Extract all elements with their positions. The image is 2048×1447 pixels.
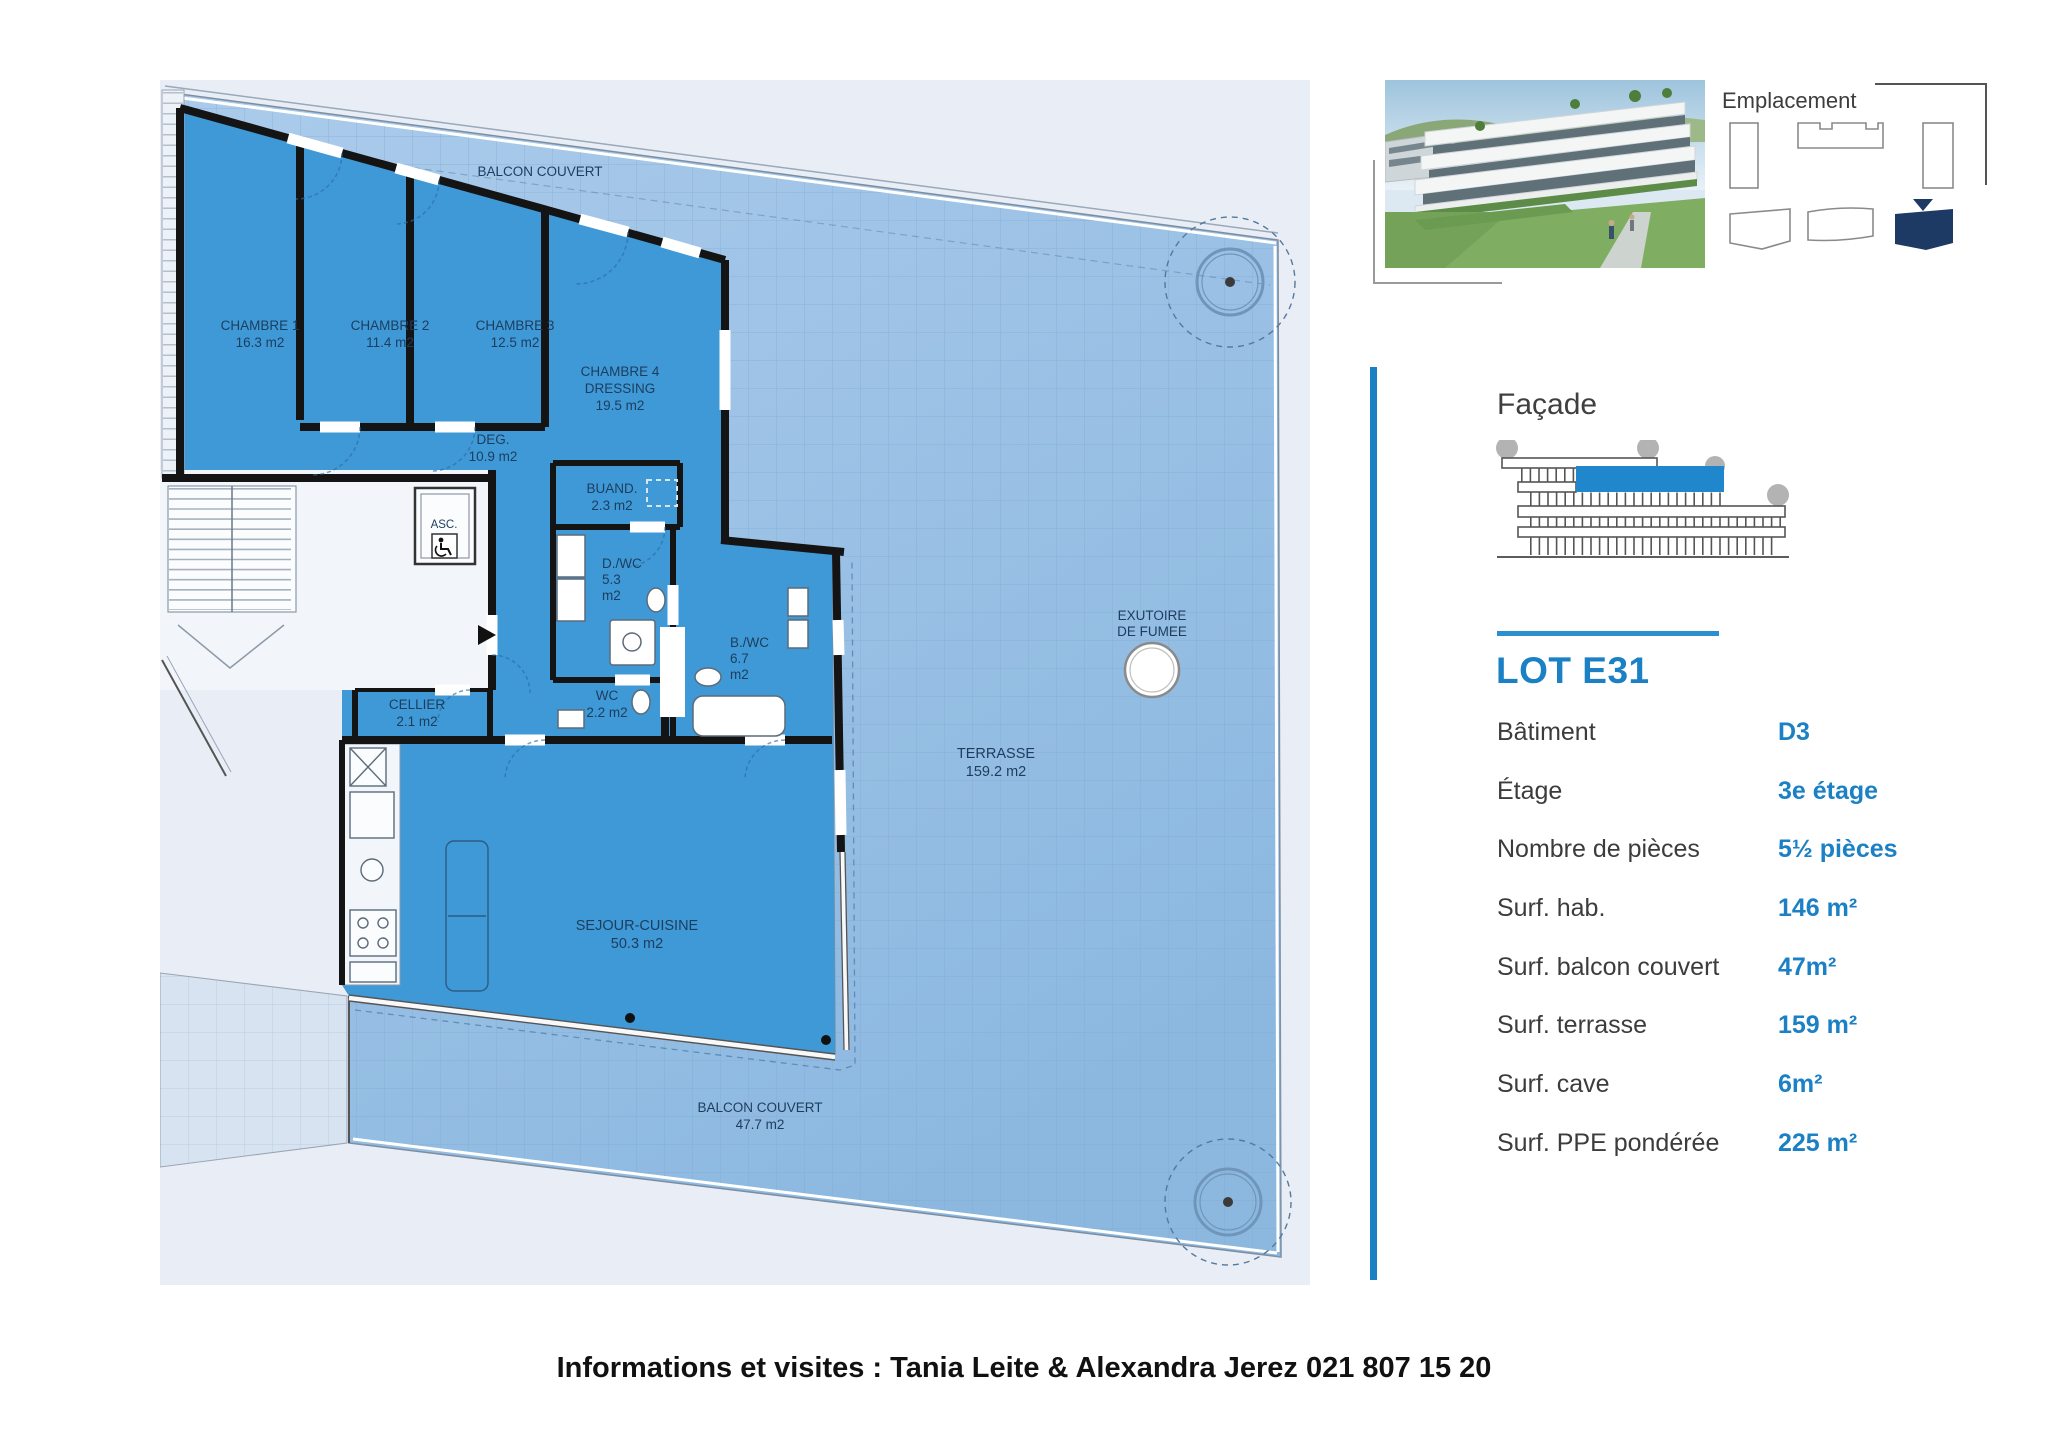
room-label-asc: ASC. <box>431 519 458 531</box>
room-label: SEJOUR-CUISINE <box>576 918 699 934</box>
lot-row-label: Étage <box>1497 777 1562 806</box>
room-label: WC <box>596 688 619 703</box>
lot-row-label: Nombre de pièces <box>1497 835 1700 864</box>
lot-table: Bâtiment D3 Étage 3e étage Nombre de piè… <box>1497 703 2017 1173</box>
room-label: CHAMBRE 1 <box>221 318 300 333</box>
lot-row: Surf. cave 6m² <box>1497 1055 2017 1114</box>
lot-row: Surf. terrasse 159 m² <box>1497 996 2017 1055</box>
room-label: DE FUMEE <box>1117 624 1187 639</box>
lot-row-label: Surf. terrasse <box>1497 1011 1647 1040</box>
bathtub <box>693 696 785 736</box>
room-area: 19.5 m2 <box>596 398 645 413</box>
contact-footer: Informations et visites : Tania Leite & … <box>0 1352 2048 1385</box>
wheelchair-icon <box>432 534 457 558</box>
lot-row: Surf. balcon couvert 47m² <box>1497 938 2017 997</box>
lot-row-value: D3 <box>1778 718 1810 747</box>
room-area: 12.5 m2 <box>491 335 540 350</box>
room-area: 2.2 m2 <box>586 705 627 720</box>
room-area: m2 <box>730 667 749 682</box>
room-label: TERRASSE <box>957 746 1035 762</box>
room-label: CHAMBRE 2 <box>351 318 430 333</box>
site-plan <box>1720 118 1990 268</box>
lot-row-value: 5½ pièces <box>1778 835 1898 864</box>
label-balcon-top: BALCON COUVERT <box>477 164 602 179</box>
room-label: CHAMBRE 4 <box>581 364 660 379</box>
room-area: m2 <box>602 588 621 603</box>
lot-divider <box>1497 631 1719 636</box>
lot-row-value: 47m² <box>1778 953 1836 982</box>
room-area: 5.3 <box>602 572 621 587</box>
room-label: BALCON COUVERT <box>697 1100 822 1115</box>
room-area: 2.3 m2 <box>591 498 632 513</box>
lot-row-label: Surf. hab. <box>1497 894 1605 923</box>
lot-row: Bâtiment D3 <box>1497 703 2017 762</box>
lot-row: Surf. PPE pondérée 225 m² <box>1497 1114 2017 1173</box>
triangle-marker-icon <box>1913 199 1933 211</box>
room-label: B./WC <box>730 635 769 650</box>
lot-row-label: Surf. cave <box>1497 1070 1610 1099</box>
toilet <box>632 690 650 714</box>
photo-corner-bracket <box>1373 160 1502 284</box>
floor-plan-svg: ASC. <box>160 80 1310 1285</box>
site-building-highlighted <box>1895 209 1953 250</box>
emplacement-section: Emplacement <box>1720 88 2010 278</box>
lot-row: Nombre de pièces 5½ pièces <box>1497 820 2017 879</box>
room-area: 10.9 m2 <box>469 449 518 464</box>
room-area: 6.7 <box>730 651 749 666</box>
site-building-outline <box>1730 209 1790 249</box>
room-label: EXUTOIRE <box>1118 608 1187 623</box>
lot-row-label: Surf. balcon couvert <box>1497 953 1719 982</box>
room-label: BUAND. <box>586 481 637 496</box>
toilet <box>647 588 665 612</box>
washbasin <box>695 668 721 686</box>
room-label: CELLIER <box>389 697 446 712</box>
room-area: 159.2 m2 <box>966 764 1026 780</box>
room-label: DEG. <box>476 432 509 447</box>
door-pillar <box>660 627 685 717</box>
room-area: 11.4 m2 <box>366 335 414 350</box>
lot-row-value: 6m² <box>1778 1070 1822 1099</box>
lot-row: Surf. hab. 146 m² <box>1497 879 2017 938</box>
site-building-outline <box>1798 123 1883 148</box>
room-area: 50.3 m2 <box>611 936 663 952</box>
lot-title: LOT E31 <box>1496 650 1650 692</box>
lot-row-value: 146 m² <box>1778 894 1857 923</box>
site-building-outline <box>1808 208 1873 241</box>
room-area: 16.3 m2 <box>236 335 285 350</box>
lot-row-label: Surf. PPE pondérée <box>1497 1129 1719 1158</box>
facade-diagram <box>1495 440 1795 568</box>
room-label: DRESSING <box>585 381 656 396</box>
lot-row-value: 225 m² <box>1778 1129 1857 1158</box>
site-building-outline <box>1730 123 1758 188</box>
lot-row-value: 3e étage <box>1778 777 1878 806</box>
shower <box>610 620 655 665</box>
facade-title: Façade <box>1497 388 1597 422</box>
room-area: 2.1 m2 <box>396 714 437 729</box>
elevator: ASC. <box>415 488 475 564</box>
site-building-outline <box>1923 123 1953 188</box>
facade-highlight-lot <box>1576 466 1724 492</box>
room-area: 47.7 m2 <box>736 1117 785 1132</box>
floor-plan: ASC. <box>160 80 1310 1285</box>
room-label: D./WC <box>602 556 642 571</box>
accent-bar <box>1370 367 1377 1280</box>
neighbour-balcony <box>160 973 349 1167</box>
circle-vent-icon <box>1125 643 1179 697</box>
room-label: CHAMBRE 3 <box>476 318 555 333</box>
emplacement-title: Emplacement <box>1722 88 2010 114</box>
lot-row-label: Bâtiment <box>1497 718 1596 747</box>
lot-row: Étage 3e étage <box>1497 762 2017 821</box>
lot-row-value: 159 m² <box>1778 1011 1857 1040</box>
